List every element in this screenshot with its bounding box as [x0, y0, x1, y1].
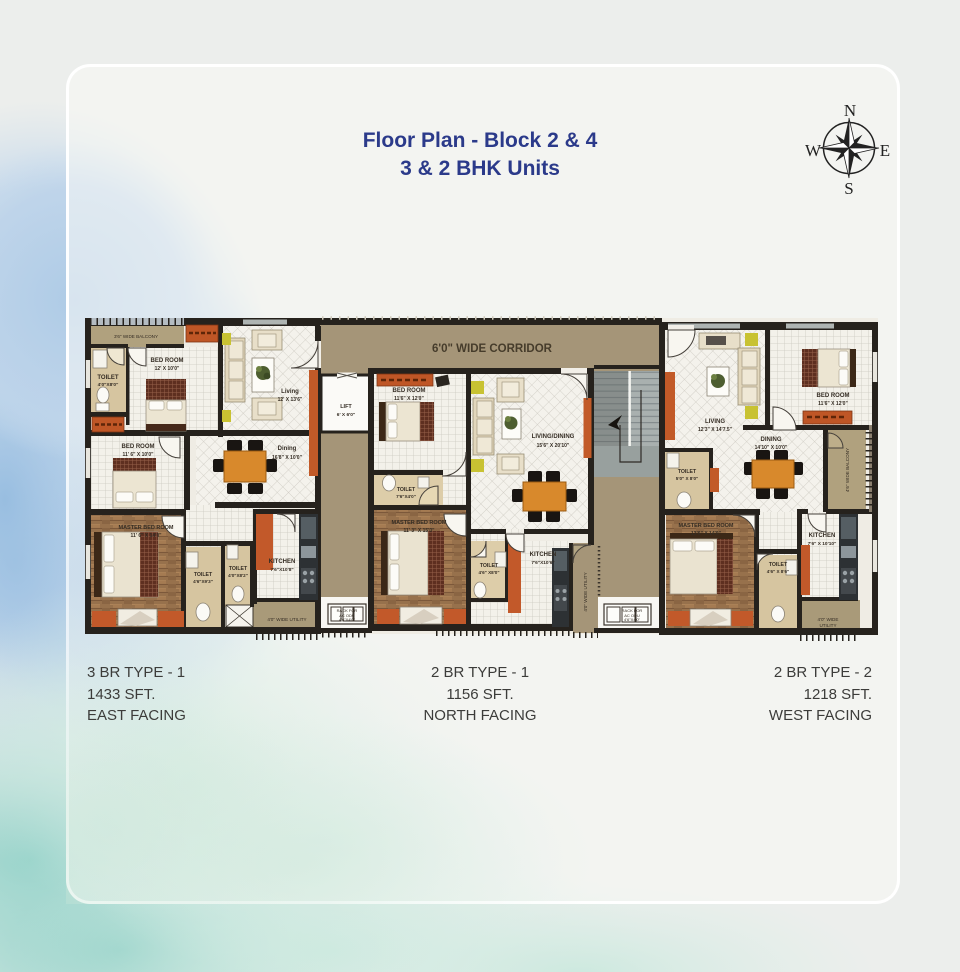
svg-text:4'0"X8'2": 4'0"X8'2" [228, 573, 248, 578]
svg-text:5'0" X 8'0": 5'0" X 8'0" [676, 476, 698, 481]
svg-text:6' X 6'0": 6' X 6'0" [337, 412, 355, 418]
svg-text:KITCHEN: KITCHEN [809, 533, 836, 539]
svg-text:11' 6" X 14'0": 11' 6" X 14'0" [130, 533, 162, 539]
svg-text:LIVING/DINING: LIVING/DINING [532, 434, 575, 440]
svg-text:TOILET: TOILET [397, 487, 416, 493]
svg-text:4'6"X4'0": 4'6"X4'0" [339, 617, 356, 622]
svg-text:11'6" X 12'0": 11'6" X 12'0" [818, 401, 848, 407]
svg-text:TOILET: TOILET [229, 566, 248, 572]
svg-text:7'6"X10'8": 7'6"X10'8" [270, 567, 293, 573]
svg-text:11'6" X 12'0": 11'6" X 12'0" [394, 396, 424, 402]
svg-text:4'0" WIDE: 4'0" WIDE [818, 617, 839, 622]
svg-text:7'6"X4'0": 7'6"X4'0" [396, 494, 416, 499]
svg-text:LIFT: LIFT [340, 404, 352, 410]
svg-text:BED ROOM: BED ROOM [817, 393, 850, 399]
svg-text:12' X 10'0": 12' X 10'0" [155, 366, 180, 372]
svg-text:UTILITY: UTILITY [819, 623, 836, 628]
svg-text:Living: Living [281, 389, 299, 395]
svg-text:7'6"X10'6": 7'6"X10'6" [531, 560, 554, 566]
svg-text:3'6" WIDE BALCONY: 3'6" WIDE BALCONY [114, 334, 158, 339]
svg-text:11' 3" X 15'0": 11' 3" X 15'0" [403, 528, 435, 534]
svg-text:6'0" WIDE CORRIDOR: 6'0" WIDE CORRIDOR [432, 343, 553, 355]
svg-text:12'3" X 14'7.5": 12'3" X 14'7.5" [698, 427, 733, 433]
svg-text:Dining: Dining [278, 446, 297, 452]
svg-text:7'6" X 10'10": 7'6" X 10'10" [808, 541, 837, 547]
svg-text:TOILET: TOILET [97, 375, 119, 381]
svg-text:MASTER BED ROOM: MASTER BED ROOM [119, 525, 174, 531]
svg-text:TOILET: TOILET [194, 572, 213, 578]
svg-text:MASTER BED ROOM: MASTER BED ROOM [679, 523, 734, 529]
svg-text:11' 6" X 10'0": 11' 6" X 10'0" [122, 452, 154, 458]
svg-text:16'8" X 10'0": 16'8" X 10'0" [272, 455, 303, 461]
svg-text:4'6" X8'0": 4'6" X8'0" [478, 570, 499, 575]
svg-text:DINING: DINING [761, 437, 782, 443]
svg-text:BED ROOM: BED ROOM [393, 388, 426, 394]
svg-text:KITCHEN: KITCHEN [269, 559, 296, 565]
svg-text:4'0" WIDE UTILITY: 4'0" WIDE UTILITY [267, 617, 306, 622]
svg-text:12' X 13'6": 12' X 13'6" [278, 397, 303, 403]
svg-text:4'6"X9'3": 4'6"X9'3" [193, 579, 213, 584]
svg-text:15'6" X 20'10": 15'6" X 20'10" [537, 443, 570, 449]
svg-text:TOILET: TOILET [769, 562, 788, 568]
svg-text:4'0"X8'0": 4'0"X8'0" [98, 382, 119, 388]
svg-text:4'0" WIDE UTILITY: 4'0" WIDE UTILITY [583, 572, 588, 611]
svg-text:BED ROOM: BED ROOM [151, 358, 184, 364]
svg-text:TOILET: TOILET [480, 563, 499, 569]
svg-text:TOILET: TOILET [678, 469, 697, 475]
svg-text:BED ROOM: BED ROOM [122, 444, 155, 450]
svg-text:LIVING: LIVING [705, 419, 725, 425]
svg-text:MASTER BED ROOM: MASTER BED ROOM [392, 520, 447, 526]
svg-text:13'6" X 14'0": 13'6" X 14'0" [691, 531, 722, 537]
svg-text:4'6"X4'0": 4'6"X4'0" [624, 617, 641, 622]
svg-text:4'6" X 8'6": 4'6" X 8'6" [767, 569, 789, 574]
svg-text:4'6" WIDE BALCONY: 4'6" WIDE BALCONY [845, 448, 850, 492]
svg-text:KITCHEN: KITCHEN [530, 552, 557, 558]
svg-text:14'10" X 10'0": 14'10" X 10'0" [755, 445, 788, 451]
